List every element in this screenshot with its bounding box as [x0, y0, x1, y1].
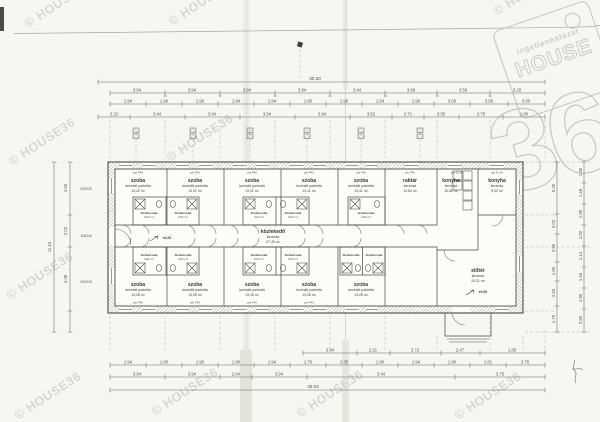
dim-label: 1.90	[196, 99, 205, 104]
room-finish: laminált parketta	[125, 288, 151, 292]
bathroom-area: 3,61 m²	[254, 215, 264, 219]
dim-label: 1.94	[268, 99, 277, 104]
dim-label: 1.80	[520, 112, 529, 117]
dim-label: 3.30	[437, 112, 446, 117]
dim-label: 1.90	[551, 266, 556, 275]
dim-label: 3.44	[377, 372, 386, 377]
room-finish: kerámia	[472, 274, 485, 278]
dim-label: 3.94	[133, 88, 142, 93]
dim-overall-top: 30.30	[309, 76, 321, 81]
left-dimension-chains: 11.10 4.50 2.02 4.38 200/130 115/240 200…	[47, 162, 92, 332]
wall-note: pfa P40	[133, 171, 143, 175]
dim-label: 1.94	[268, 360, 277, 365]
dim-label: 1.94	[412, 360, 421, 365]
pen-squiggle	[572, 360, 583, 383]
top-dimension-chains: 30.30 3.94 3.94 3.94 3.94 3.94 3.90 3.50…	[98, 76, 545, 158]
dim-label: 3.75	[496, 372, 505, 377]
dim-label: 2.22	[110, 112, 119, 117]
window-size-label: 200/130	[80, 280, 92, 284]
room-area: 13,64 m²	[403, 189, 418, 193]
entry-door-opening	[109, 227, 114, 245]
dim-tick-label: 10	[163, 94, 167, 98]
room-finish: laminált parketta	[182, 288, 208, 292]
dim-label: 2.02	[551, 219, 556, 228]
room-area: 27,45 m²	[266, 240, 281, 244]
dim-label: 3.94	[153, 112, 162, 117]
room-area: 9,02 m²	[491, 189, 504, 193]
room-finish: kerámia	[491, 184, 504, 188]
watermark-text: © HOUSE36	[294, 367, 366, 420]
dim-label: 3.94	[243, 88, 252, 93]
dim-label: 3.00	[522, 99, 531, 104]
dim-label: 3.94	[275, 372, 284, 377]
dim-tick-label: 10	[488, 94, 492, 98]
dim-label: 1.90	[578, 293, 583, 302]
dim-label: 2.75	[477, 112, 486, 117]
dim-label: 3.94	[263, 112, 272, 117]
scan-line	[14, 26, 600, 34]
dim-label: 4.38	[63, 274, 68, 283]
bottom-dimension-chains: 3.94 2.31 3.72 2.47 1.85 1.94 1.80 1.90 …	[110, 316, 545, 393]
door-size-label: 115/240	[80, 234, 92, 238]
scanned-floor-plan-page: © HOUSE36 © HOUSE36 © HOUSE36 © HOUSE36 …	[0, 0, 600, 422]
dim-label: 3.94	[318, 112, 327, 117]
dim-label: 3.94	[353, 88, 362, 93]
watermark-text: © HOUSE36	[491, 0, 563, 19]
dim-tick-label: 10	[435, 94, 439, 98]
dim-label: 1.80	[160, 360, 169, 365]
dim-label: 1.94	[124, 360, 133, 365]
dim-label: 1.90	[160, 99, 169, 104]
bathroom-name: fürdőszoba	[343, 253, 360, 257]
dim-label: 2.04	[232, 372, 241, 377]
dim-label: 2.50	[578, 315, 583, 324]
dim-label: 3.94	[188, 372, 197, 377]
dim-tick-label: 10	[383, 94, 387, 98]
room-area: 20,21 m²	[471, 279, 486, 283]
dim-label: 1.36	[578, 167, 583, 176]
dim-label: 1.90	[376, 360, 385, 365]
dim-label: 1.90	[304, 99, 313, 104]
room-finish: kerámia	[404, 184, 417, 188]
room-area: 13,41 m²	[354, 189, 369, 193]
watermark-text: © HOUSE36	[149, 365, 221, 418]
room-area: 13,28 m²	[302, 293, 317, 297]
wall-note: pfa P40	[304, 301, 314, 305]
room-finish: laminált parketta	[239, 184, 265, 188]
room-label-storage: raktár kerámia 13,64 m²	[403, 178, 418, 193]
room-area: 13,28 m²	[131, 293, 146, 297]
room-finish: kerámia	[267, 235, 280, 239]
dim-label: 4.50	[63, 183, 68, 192]
dim-label: 1.45	[578, 272, 583, 281]
dim-label: 1.75	[551, 314, 556, 323]
dim-label: 3.94	[188, 88, 197, 93]
dim-overall-left: 11.10	[47, 241, 52, 252]
dim-label: 1.90	[578, 209, 583, 218]
room-area: 13,41 m²	[302, 189, 317, 193]
room-finish: laminált parketta	[348, 184, 374, 188]
room-area: 13,91 m²	[188, 189, 203, 193]
wall-note: pfa P40	[133, 301, 143, 305]
bathroom-area: 3,61 m²	[288, 257, 298, 261]
bathroom-name: fürdőszoba	[366, 253, 383, 257]
bathroom-area: 3,61 m²	[178, 257, 188, 261]
dim-label: 3.20	[513, 88, 522, 93]
dim-label: 2.31	[369, 348, 378, 353]
dim-label: 3.50	[485, 99, 494, 104]
room-area: 13,42 m²	[131, 189, 146, 193]
floor-plan-drawing: © HOUSE36 © HOUSE36 © HOUSE36 © HOUSE36 …	[0, 0, 600, 422]
bathroom-area: 3,61 m²	[144, 215, 154, 219]
dim-label: 3.94	[326, 348, 335, 353]
edge-tab	[0, 7, 4, 31]
wall-note: pfa P40	[247, 301, 257, 305]
watermark-text: © HOUSE36	[12, 369, 84, 422]
wall-note: pfa P40	[304, 171, 314, 175]
room-finish: laminált parketta	[348, 288, 374, 292]
window-size-label: 200/130	[80, 187, 92, 191]
dim-overall-bottom: 30.02	[307, 384, 319, 389]
watermark-text: © HOUSE36	[6, 115, 78, 168]
dim-label: 1.90	[412, 99, 421, 104]
room-area: 13,28 m²	[354, 293, 369, 297]
dim-label: 3.94	[298, 88, 307, 93]
level-marker-text: ±0,00	[479, 290, 488, 294]
room-finish: laminált parketta	[296, 288, 322, 292]
fold-smudge	[240, 350, 252, 422]
dim-label: 3.94	[208, 112, 217, 117]
room-finish: laminált parketta	[182, 184, 208, 188]
dim-label: 3.94	[133, 372, 142, 377]
dim-tick-label: 10	[218, 94, 222, 98]
wall-note: pfa P40	[405, 171, 415, 175]
dim-label: 1.14	[578, 251, 583, 260]
dim-label: 3.52	[367, 112, 376, 117]
dim-label: 1.90	[232, 360, 241, 365]
dim-label: 3.50	[459, 88, 468, 93]
room-finish: kerámia	[445, 184, 458, 188]
dim-label: 2.50	[551, 288, 556, 297]
watermark-text: © HOUSE36	[164, 111, 236, 164]
dim-label: 2.47	[456, 348, 465, 353]
dim-label: 1.70	[304, 360, 313, 365]
bathroom-area: 3,61 m²	[254, 257, 264, 261]
dim-label: 1.48	[578, 188, 583, 197]
room-area: 15,86 m²	[444, 189, 459, 193]
bathroom-area: 3,61 m²	[288, 215, 298, 219]
bathroom-area: 3,61 m²	[144, 257, 154, 261]
wall-note: pfa P40	[247, 171, 257, 175]
dim-label: 2.71	[404, 112, 413, 117]
room-finish: laminált parketta	[125, 184, 151, 188]
dim-label: 1.90	[340, 99, 349, 104]
dim-label: 1.94	[376, 99, 385, 104]
level-marker-text: ±0,00	[163, 236, 172, 240]
dim-label: 5.25	[551, 183, 556, 192]
dim-label: 1.81	[484, 360, 493, 365]
wall-note: pfa P40	[356, 171, 366, 175]
room-finish: laminált parketta	[239, 288, 265, 292]
wall-note: pfa 61.90	[451, 171, 463, 175]
dim-tick-label: 10	[273, 94, 277, 98]
bathroom-area: 3,61 m²	[178, 215, 188, 219]
wall-note: pfa 61.90	[491, 171, 503, 175]
dim-label: 3.72	[411, 348, 420, 353]
room-area: 13,91 m²	[245, 189, 260, 193]
wall-note: pfa P40	[190, 301, 200, 305]
room-finish: laminált parketta	[296, 184, 322, 188]
room-area: 13,28 m²	[188, 293, 203, 297]
bathroom-area: 3,61 m²	[361, 215, 371, 219]
dim-label: 1.85	[508, 348, 517, 353]
dim-label: 2.35	[340, 360, 349, 365]
dim-label: 1.94	[124, 99, 133, 104]
watermark-text: © HOUSE36	[166, 0, 238, 29]
dim-label: 1.00	[578, 230, 583, 239]
dim-label: 2.95	[551, 243, 556, 252]
dim-label: 1.94	[232, 99, 241, 104]
dim-label: 3.90	[407, 88, 416, 93]
room-area: 13,28 m²	[245, 293, 260, 297]
dim-label: 3.75	[521, 360, 530, 365]
wall-note: pfa P40	[190, 171, 200, 175]
watermark-text: © HOUSE36	[22, 0, 94, 31]
dim-label: 2.02	[63, 226, 68, 235]
dim-label: 1.90	[196, 360, 205, 365]
dim-label: 1.90	[448, 360, 457, 365]
dim-tick-label: 10	[328, 94, 332, 98]
dim-label: 3.00	[448, 99, 457, 104]
section-marker	[297, 41, 303, 80]
